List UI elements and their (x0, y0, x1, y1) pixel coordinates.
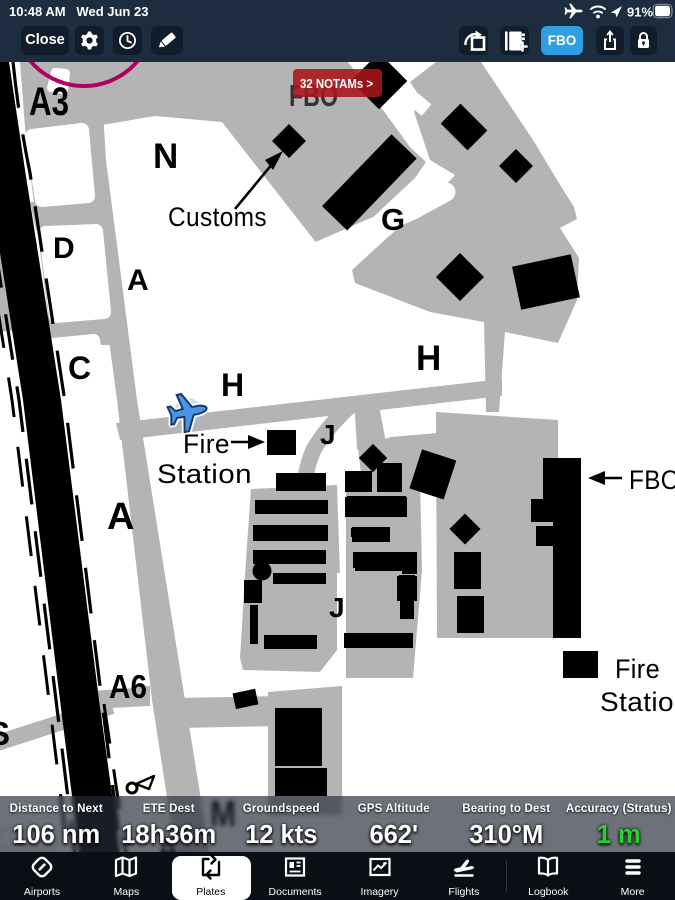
svg-text:A3: A3 (29, 80, 69, 124)
svg-text:H: H (416, 339, 441, 378)
svg-text:C: C (68, 350, 91, 386)
svg-text:H: H (221, 367, 244, 403)
svg-text:Customs: Customs (168, 202, 267, 232)
svg-text:Station: Station (600, 687, 675, 717)
svg-text:A: A (127, 264, 149, 297)
svg-text:A: A (107, 496, 134, 538)
svg-text:J: J (320, 419, 336, 450)
svg-text:D: D (53, 232, 75, 265)
svg-text:N: N (153, 137, 178, 176)
svg-text:S: S (0, 715, 10, 752)
svg-text:Station: Station (157, 459, 252, 489)
svg-text:91%: 91% (627, 5, 653, 20)
svg-text:G: G (381, 202, 405, 237)
svg-text:A6: A6 (109, 668, 147, 705)
svg-text:FBO: FBO (629, 465, 675, 495)
svg-text:J: J (329, 592, 345, 623)
svg-text:32 NOTAMs >: 32 NOTAMs > (300, 76, 373, 91)
svg-text:Fire: Fire (615, 654, 660, 684)
